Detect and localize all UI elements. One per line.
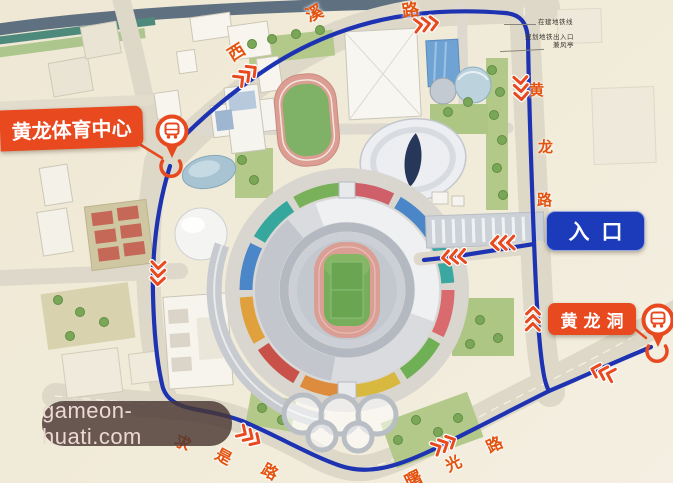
cave-callout: 黄龙洞 bbox=[548, 303, 636, 335]
entrance-label: 入口 bbox=[557, 216, 635, 246]
road-xixi-char-2: 路 bbox=[401, 1, 421, 21]
road-huanglong-char-0: 黄 bbox=[529, 83, 544, 98]
sports-center-label: 黄龙体育中心 bbox=[11, 112, 132, 145]
watermark-text: gameon-huati.com bbox=[42, 398, 232, 450]
sports-center-callout: 黄龙体育中心 bbox=[0, 106, 144, 152]
road-huanglong-char-2: 路 bbox=[537, 193, 552, 208]
entrance-callout: 入口 bbox=[546, 211, 645, 251]
plan-annotation-1: 在建地铁线 bbox=[538, 19, 573, 27]
map-screenshot: 黄龙体育中心 入口 黄龙洞 西 溪 路 黄 龙 路 求 是 路 曙 光 路 在建… bbox=[0, 0, 673, 483]
watermark-badge: gameon-huati.com bbox=[42, 401, 232, 446]
main-stadium bbox=[214, 168, 469, 421]
plan-annotation-2: 规划地铁出入口 兼风亭 bbox=[500, 34, 574, 49]
annotation-leader-line bbox=[504, 24, 536, 25]
road-huanglong-char-1: 龙 bbox=[538, 140, 553, 155]
cave-label: 黄龙洞 bbox=[555, 307, 630, 332]
